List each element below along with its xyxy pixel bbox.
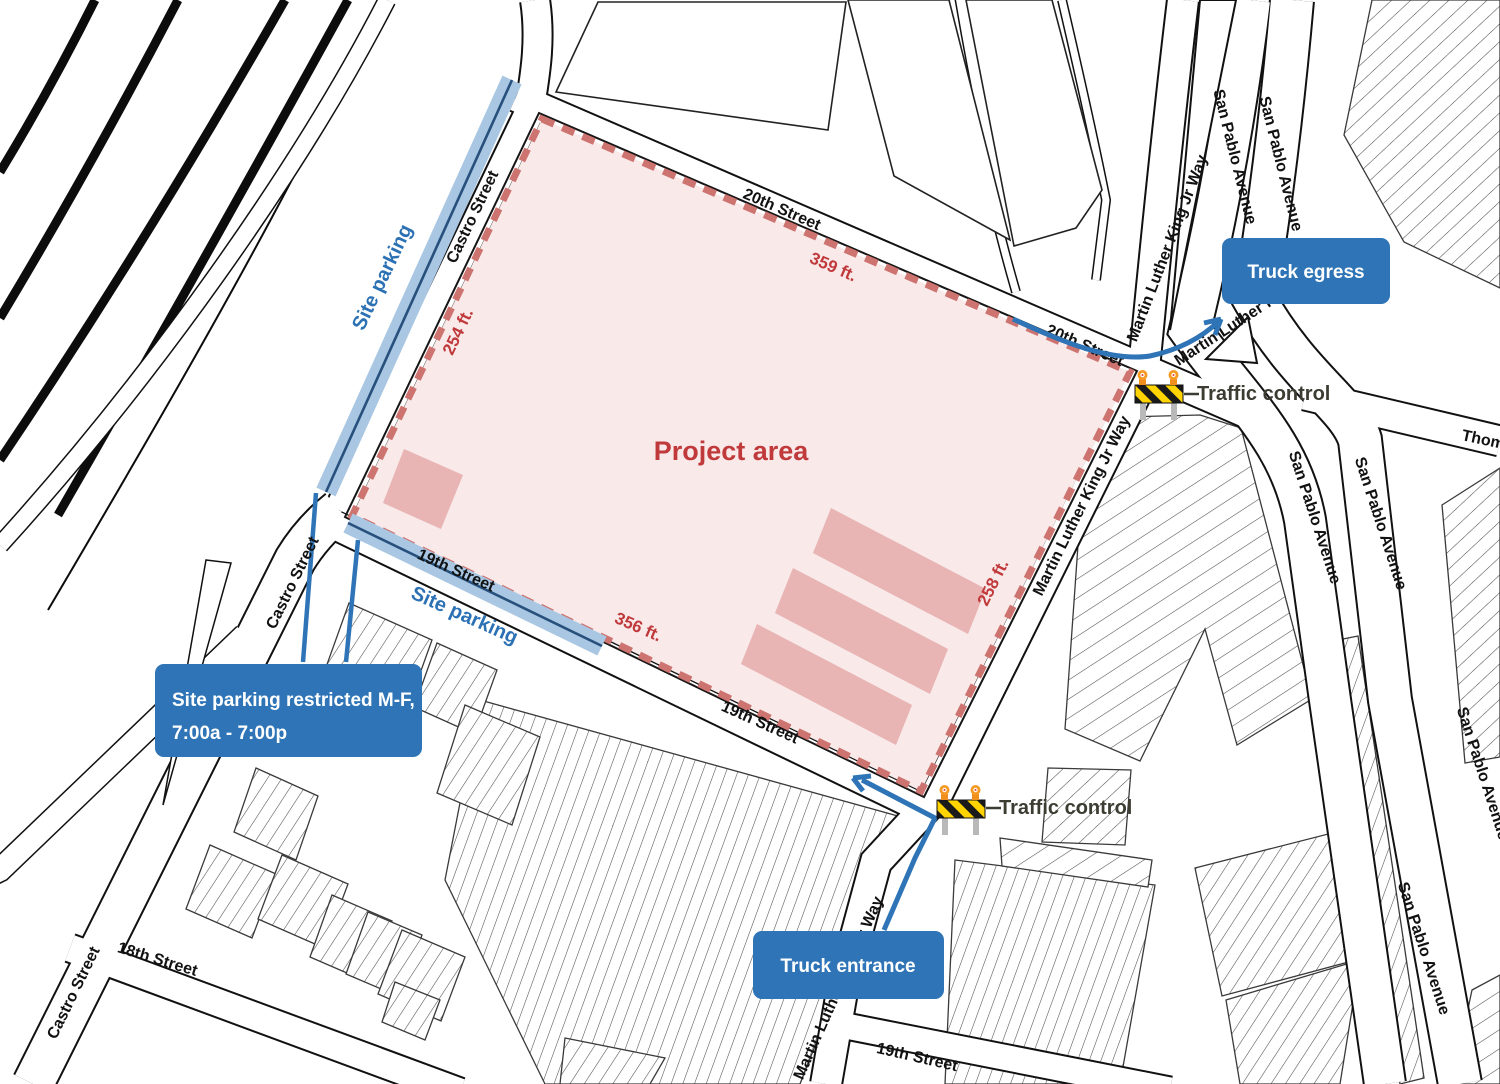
svg-text:Site parking restricted M-F,: Site parking restricted M-F,: [172, 690, 415, 711]
svg-text:Project area: Project area: [654, 436, 810, 466]
svg-text:7:00a - 7:00p: 7:00a - 7:00p: [172, 723, 287, 744]
svg-text:Traffic control: Traffic control: [999, 797, 1132, 819]
svg-text:Truck egress: Truck egress: [1247, 262, 1364, 283]
svg-text:Truck entrance: Truck entrance: [780, 956, 915, 977]
svg-text:Traffic control: Traffic control: [1197, 383, 1330, 405]
